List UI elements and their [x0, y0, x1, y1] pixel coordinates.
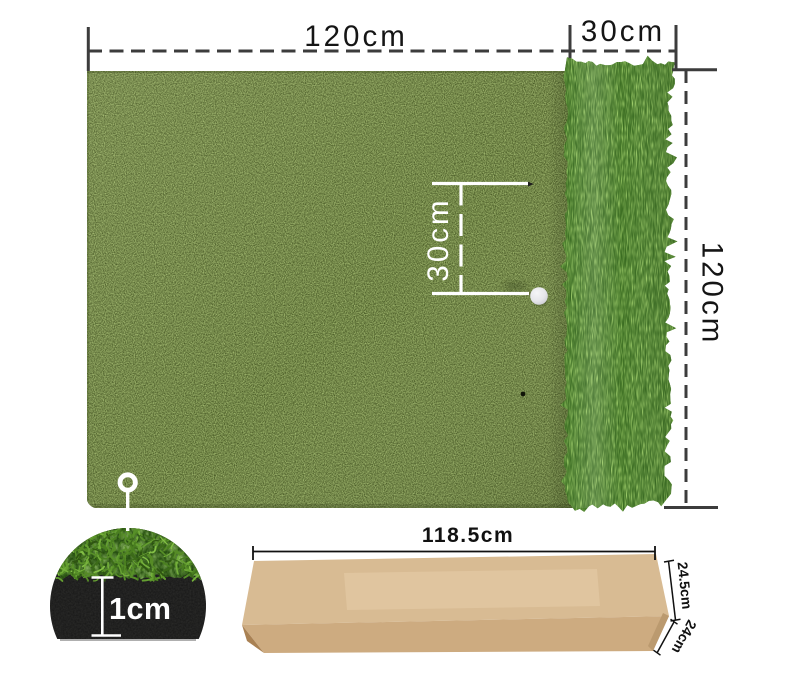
svg-text:120cm: 120cm: [696, 242, 729, 346]
svg-text:24.5cm: 24.5cm: [675, 561, 696, 610]
svg-text:120cm: 120cm: [304, 20, 408, 53]
svg-text:30cm: 30cm: [581, 15, 665, 48]
svg-text:30cm: 30cm: [422, 197, 455, 281]
svg-text:118.5cm: 118.5cm: [422, 524, 514, 547]
svg-text:1cm: 1cm: [109, 592, 172, 626]
